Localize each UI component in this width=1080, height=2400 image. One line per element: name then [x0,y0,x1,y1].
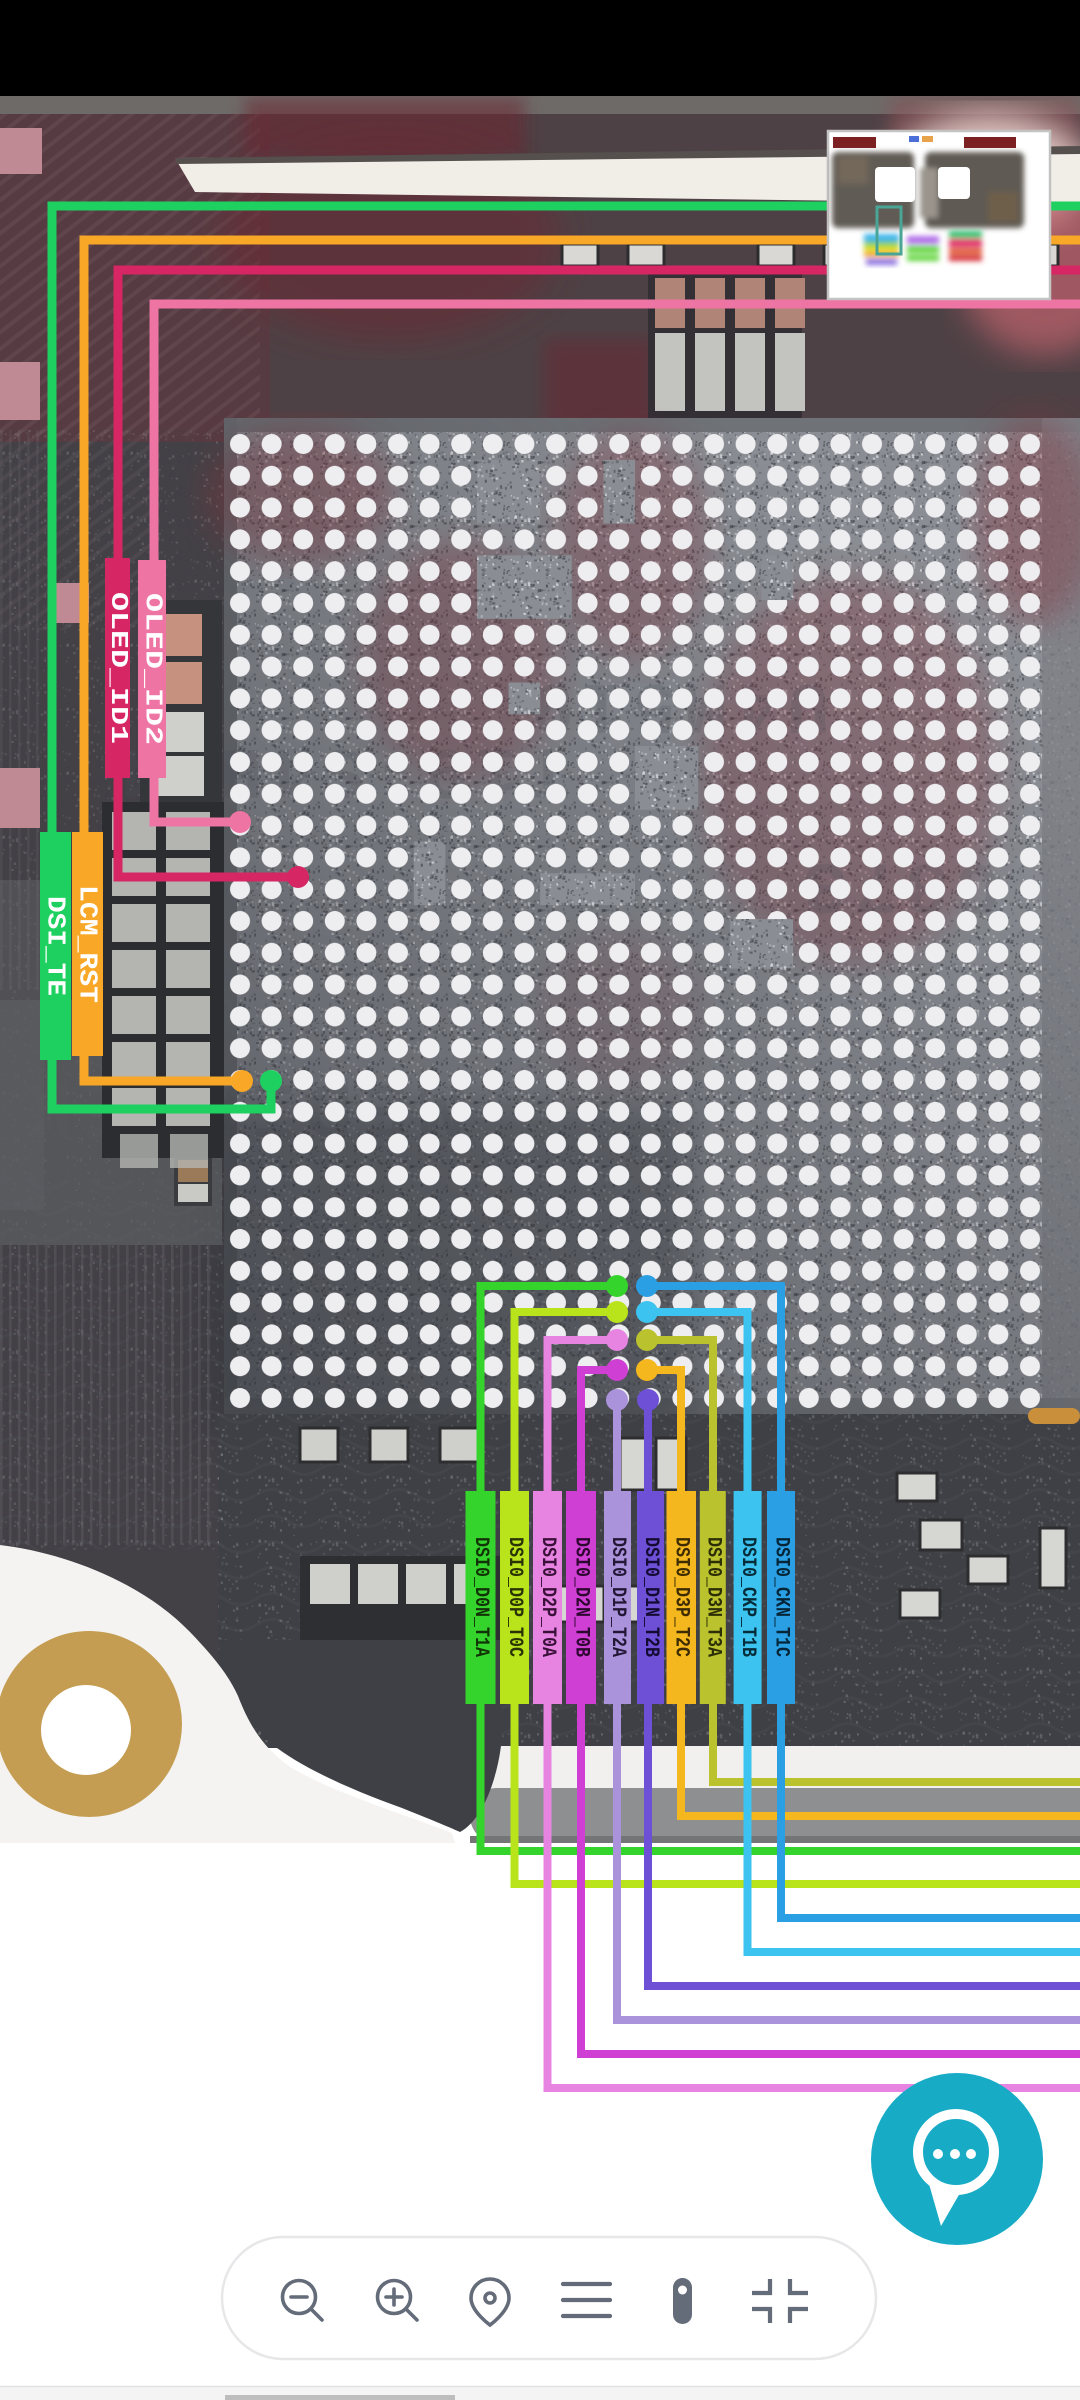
svg-text:DSI0_D2N_T0B: DSI0_D2N_T0B [570,1537,593,1657]
svg-text:DSI0_D2P_T0A: DSI0_D2P_T0A [536,1537,559,1657]
svg-text:LCM_RST: LCM_RST [73,885,103,1003]
svg-text:DSI0_D1P_T2A: DSI0_D1P_T2A [606,1537,629,1657]
svg-text:DSI0_D3P_T2C: DSI0_D3P_T2C [670,1537,693,1657]
svg-text:DSI0_D0N_T1A: DSI0_D0N_T1A [469,1537,492,1657]
svg-text:DSI_TE: DSI_TE [41,896,71,996]
svg-text:OLED_ID2: OLED_ID2 [139,593,166,745]
svg-text:DSI0_CKP_T1B: DSI0_CKP_T1B [736,1537,759,1657]
svg-text:DSI0_CKN_T1C: DSI0_CKN_T1C [770,1537,793,1657]
svg-text:OLED_ID1: OLED_ID1 [104,592,131,744]
svg-text:DSI0_D3N_T3A: DSI0_D3N_T3A [702,1537,725,1657]
svg-text:DSI0_D0P_T0C: DSI0_D0P_T0C [503,1537,526,1657]
svg-text:DSI0_D1N_T2B: DSI0_D1N_T2B [639,1537,662,1657]
